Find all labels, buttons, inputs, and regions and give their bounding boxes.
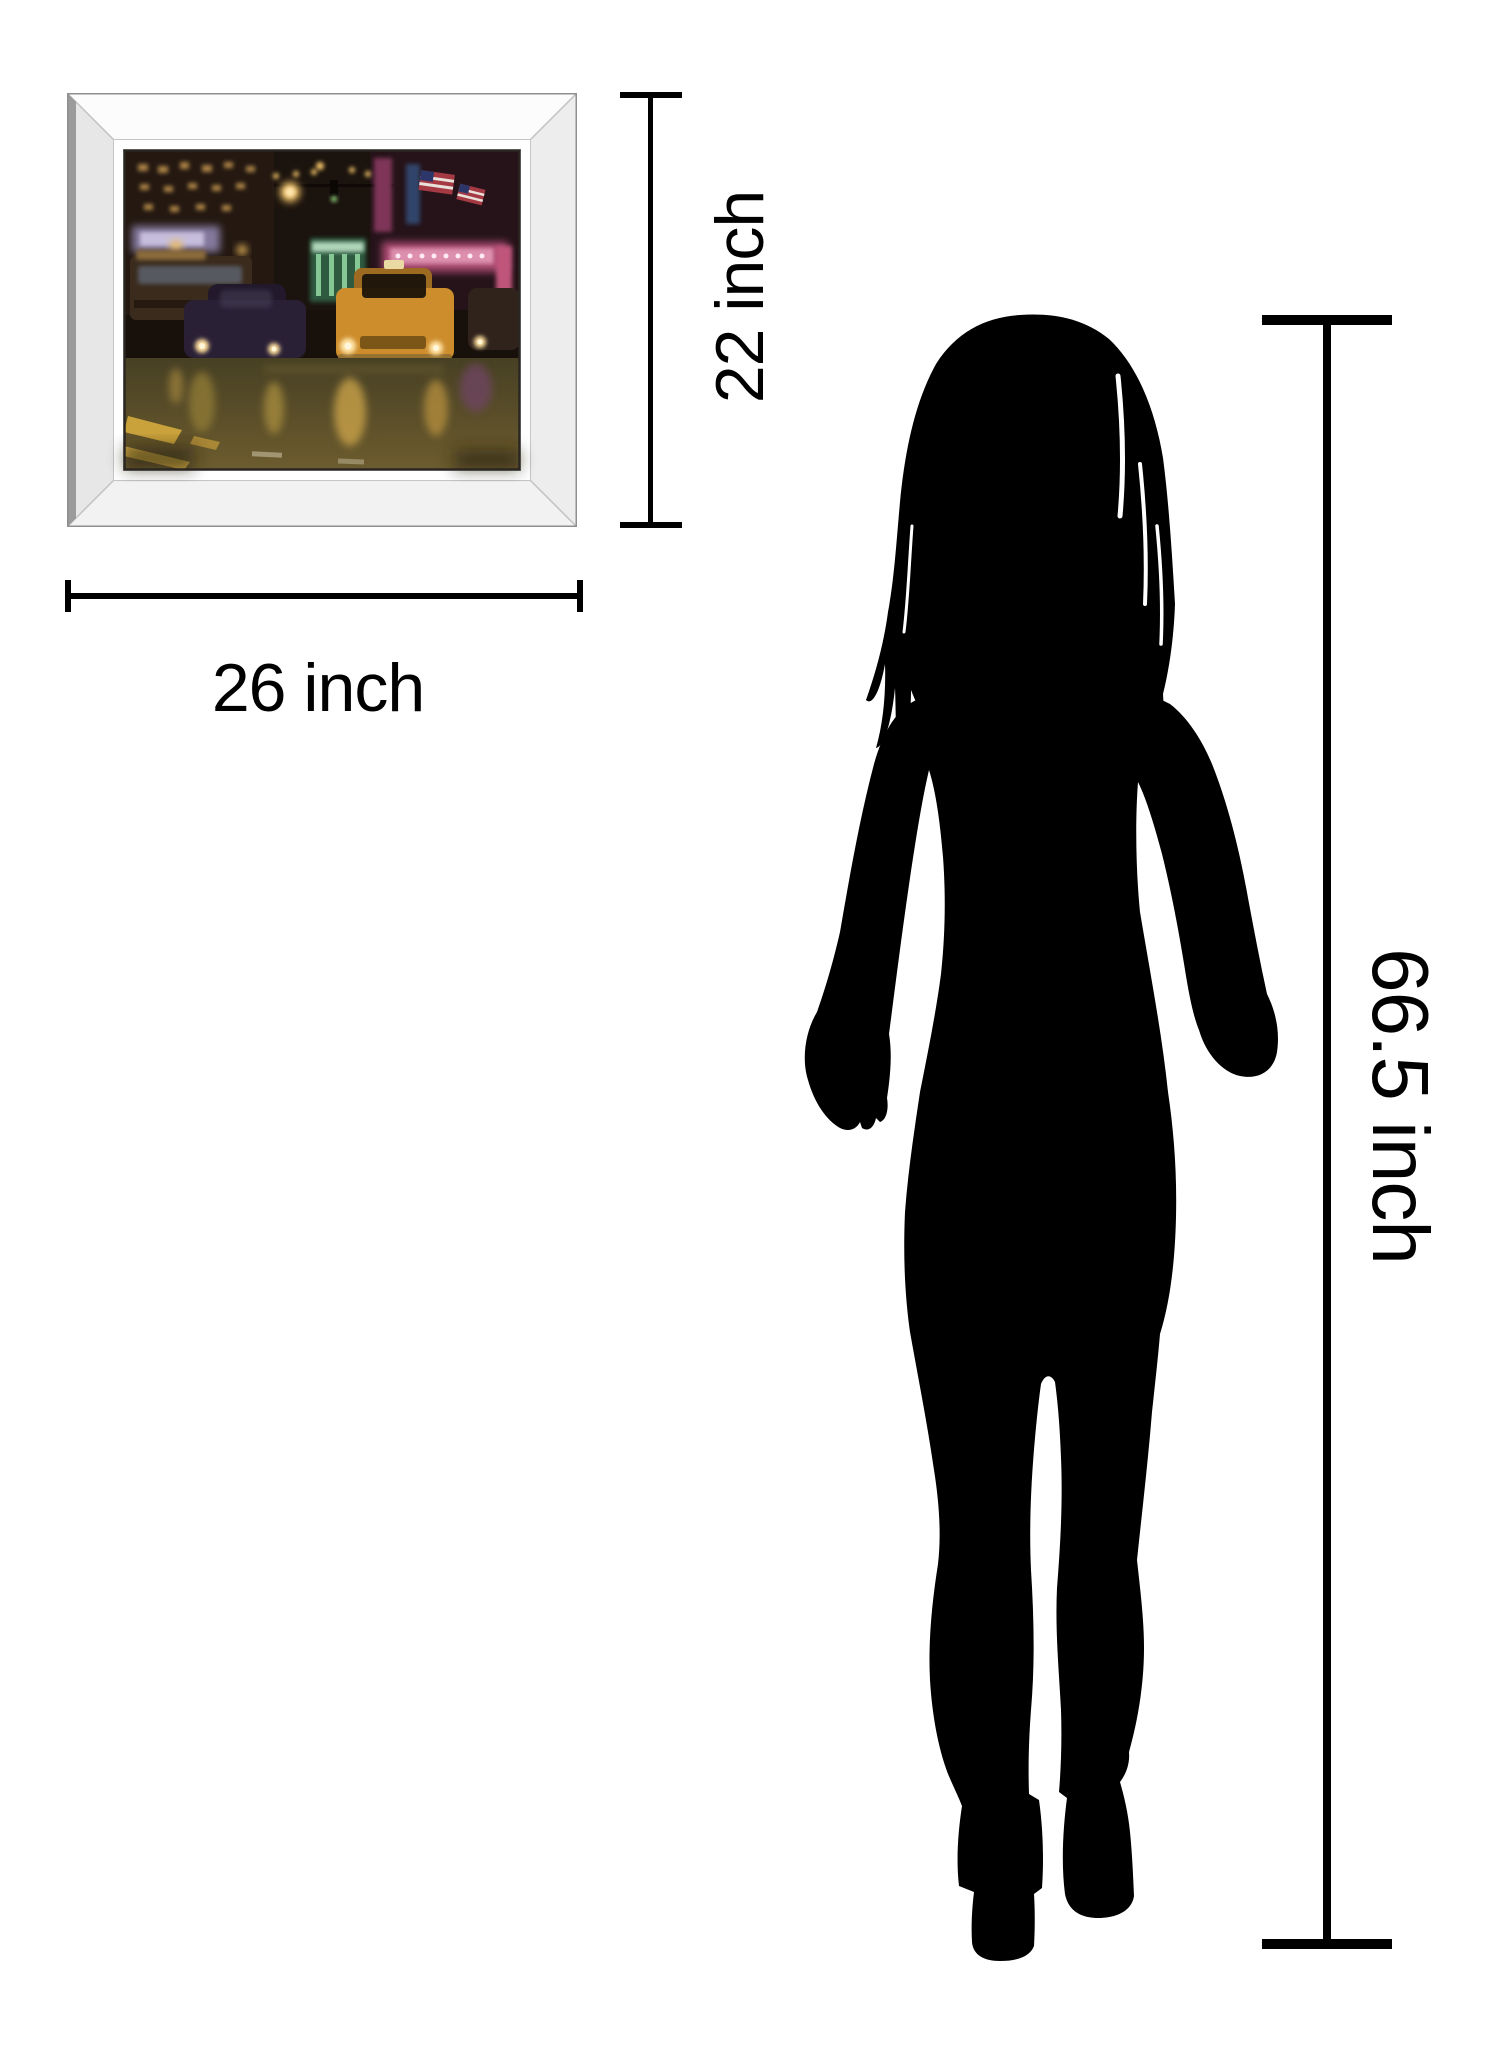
artwork-width-label: 26 inch: [212, 654, 424, 722]
person-height-label: 66.5 inch: [1360, 948, 1440, 1264]
person-silhouette: [788, 312, 1288, 1962]
product-size-diagram: 22 inch 26 inch: [0, 0, 1487, 2048]
width-dimension-line: [68, 593, 582, 599]
person-height-bottom-tick: [1262, 1939, 1392, 1949]
art-frame: [67, 93, 577, 527]
height-dimension-bottom-tick: [620, 522, 682, 528]
artwork-image: [124, 150, 520, 470]
artwork-height-label: 22 inch: [706, 191, 774, 403]
width-dimension-right-tick: [577, 580, 583, 612]
person-height-line: [1323, 320, 1331, 1944]
height-dimension-line: [648, 95, 653, 525]
framed-artwork: [67, 93, 577, 527]
